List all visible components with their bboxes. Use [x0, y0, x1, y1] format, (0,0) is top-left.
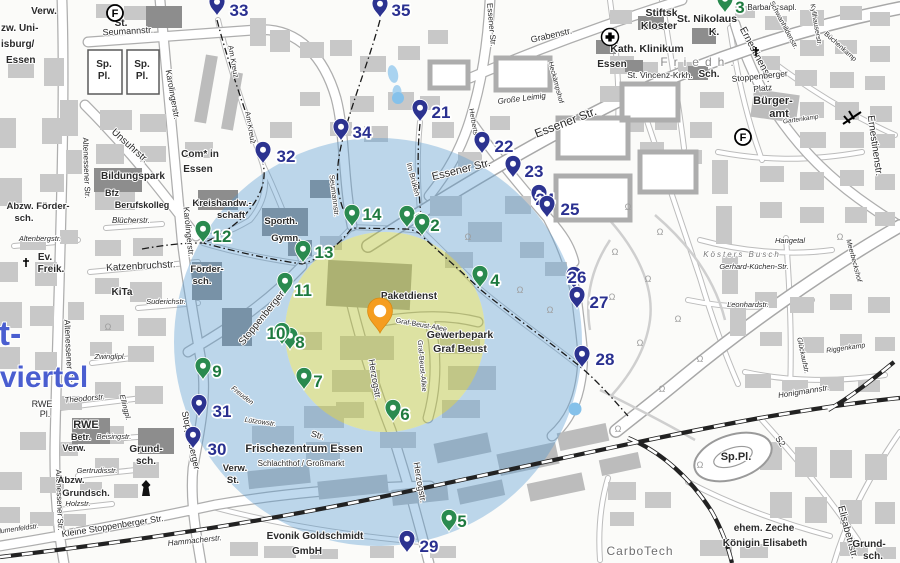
map-label: sch. — [863, 551, 883, 562]
tree-icon: Ω — [547, 305, 554, 315]
tree-icon: Ω — [609, 292, 616, 302]
map-label: Kreishandw.- — [192, 198, 251, 209]
map-label: Bürger- — [753, 95, 793, 107]
map-label: Kloster — [641, 20, 677, 32]
map-label: viertel — [0, 361, 88, 394]
map-label: Friedh. — [660, 55, 739, 69]
marker-25-number[interactable]: 25 — [561, 200, 580, 219]
marker-3-number[interactable]: 3 — [735, 0, 744, 17]
marker-21-number[interactable]: 21 — [432, 103, 451, 122]
map-label: Paketdienst — [381, 291, 438, 302]
map-label: Berufskolleg — [115, 200, 170, 210]
marker-30-number[interactable]: 30 — [208, 440, 227, 459]
hospital-cross-icon — [602, 29, 619, 46]
map-label: CarboTech — [606, 544, 673, 558]
map-label: Förder- — [190, 264, 223, 275]
map-label: sch. — [192, 276, 211, 287]
map-label: Pl. — [40, 409, 51, 419]
map-label: Grund- — [852, 539, 885, 550]
marker-2-number[interactable]: 2 — [430, 216, 439, 235]
tree-icon: Ω — [837, 232, 844, 242]
marker-10-number[interactable]: 10 — [267, 324, 286, 343]
map-label: KiTa — [112, 287, 133, 298]
marker-12-number[interactable]: 12 — [213, 227, 232, 246]
map-label: Verw. — [223, 463, 247, 474]
marker-28-number[interactable]: 28 — [596, 350, 615, 369]
tree-icon: Ω — [105, 322, 112, 332]
map-label: Frischezentrum Essen — [245, 443, 363, 455]
marker-35-number[interactable]: 35 — [392, 1, 411, 20]
map-label: Verw. — [62, 443, 85, 453]
tree-icon: Ω — [615, 424, 622, 434]
marker-14-number[interactable]: 14 — [363, 205, 382, 224]
map-canvas[interactable]: ΩΩΩΩΩΩΩΩΩΩΩΩΩΩΩΩ Verw.St.Sp.Pl.Sp.Pl.Seu… — [0, 0, 900, 563]
map-label: Pl. — [136, 71, 148, 82]
map-label: Stiftsk. — [645, 7, 680, 19]
map-label: K. — [709, 26, 720, 38]
marker-14[interactable]: 14 — [344, 204, 382, 227]
tree-icon: Ω — [465, 232, 472, 242]
map-label: St. — [227, 475, 239, 486]
map-label: t- — [0, 315, 21, 353]
marker-4-number[interactable]: 4 — [490, 271, 500, 290]
marker-9-number[interactable]: 9 — [212, 362, 221, 381]
map-label: Essen — [183, 164, 212, 175]
highlight-dot — [392, 92, 404, 104]
marker-13[interactable]: 13 — [295, 240, 333, 263]
map-label: Schlachthof / Großmarkt — [258, 459, 345, 468]
map-label: Gertrudisstr. — [77, 466, 118, 475]
map-label: Graf Beust — [433, 343, 487, 355]
map-label: Bfz — [105, 188, 119, 198]
marker-26-number[interactable]: 26 — [568, 268, 587, 287]
map-label: isburg/ — [1, 39, 35, 50]
map-label: Sporth. — [264, 216, 297, 227]
map-label: Sch. — [698, 69, 719, 80]
tree-icon: Ω — [657, 227, 664, 237]
svg-text:F: F — [112, 8, 119, 20]
map-label: schaft — [217, 210, 246, 221]
marker-26[interactable]: 26 — [566, 266, 586, 289]
marker-23-number[interactable]: 23 — [525, 162, 544, 181]
marker-32-number[interactable]: 32 — [277, 147, 296, 166]
marker-31-number[interactable]: 31 — [213, 402, 232, 421]
tree-icon: Ω — [675, 314, 682, 324]
marker-33-number[interactable]: 33 — [230, 1, 249, 20]
map-label: Ev. — [38, 252, 52, 263]
marker-34-number[interactable]: 34 — [353, 123, 372, 142]
marker-6-number[interactable]: 6 — [400, 405, 409, 424]
map-label: Gewerbepark — [427, 329, 494, 341]
map-label: Evonik Goldschmidt — [267, 531, 364, 542]
map-label: Freik. — [38, 264, 65, 275]
marker-11-number[interactable]: 11 — [294, 281, 312, 300]
marker-21[interactable]: 21 — [412, 99, 450, 122]
map-label: Suderichstr. — [146, 297, 186, 306]
map-label: Grundsch. — [62, 488, 110, 499]
map-label: Abzw. — [57, 475, 84, 486]
map-label: Kösters Busch — [703, 250, 781, 259]
map-label: St. Nikolaus — [677, 13, 737, 25]
map-label: Platz — [753, 82, 773, 94]
map-label: RWE — [32, 399, 53, 409]
map-label: GmbH — [292, 546, 322, 557]
svg-text:F: F — [740, 132, 747, 144]
tree-icon: Ω — [625, 202, 632, 212]
tree-icon: Ω — [645, 274, 652, 284]
map-label: RWE — [73, 419, 98, 431]
highlight-dot — [569, 403, 582, 416]
map-label: St. Vincenz-Krkh. — [627, 70, 693, 80]
marker-13-number[interactable]: 13 — [315, 243, 334, 262]
map-label: sch. — [14, 213, 33, 224]
circled-f-icon: F — [107, 5, 123, 21]
map-label: ehem. Zeche — [734, 523, 795, 534]
map-label: zw. Uni- — [1, 23, 38, 34]
map-label: Holzstr. — [65, 499, 90, 508]
map-label: Verw. — [31, 6, 57, 17]
map-label: Pl. — [98, 71, 110, 82]
tree-icon: Ω — [517, 285, 524, 295]
tree-icon: Ω — [612, 247, 619, 257]
map-label: Kath. Klinikum — [610, 43, 684, 55]
map-label: Sp. — [96, 59, 112, 70]
marker-22-number[interactable]: 22 — [495, 137, 514, 156]
map-label: Gymn. — [271, 233, 301, 244]
marker-8-number[interactable]: 8 — [295, 333, 304, 352]
map-label: Sp. — [134, 59, 150, 70]
map-label: Gerhard-Küchen-Str. — [719, 262, 788, 271]
circled-f-icon: F — [735, 129, 751, 145]
map-label: Grund- — [129, 444, 162, 455]
map-label: Essen — [597, 59, 626, 70]
map-label: Blücherstr. — [112, 216, 150, 225]
map-label: Altenbergstr. — [18, 234, 61, 243]
marker-29-number[interactable]: 29 — [420, 537, 439, 556]
map-label: Com* in — [181, 149, 219, 160]
marker-27-number[interactable]: 27 — [590, 293, 609, 312]
map-label: Bildungspark — [101, 171, 165, 182]
map-label: Beisingstr. — [97, 432, 132, 441]
map-label: Sp.Pl. — [721, 451, 752, 463]
marker-5-number[interactable]: 5 — [457, 512, 466, 531]
map-label: Essen — [6, 55, 35, 66]
tree-icon: Ω — [659, 384, 666, 394]
tree-icon: Ω — [697, 354, 704, 364]
map-label: Betr. — [71, 432, 91, 442]
map-label: Abzw. Förder- — [7, 201, 70, 212]
city-map: ΩΩΩΩΩΩΩΩΩΩΩΩΩΩΩΩ Verw.St.Sp.Pl.Sp.Pl.Seu… — [0, 0, 900, 563]
map-label: Hangetal — [775, 236, 805, 245]
map-label: Zwinglipl. — [93, 352, 125, 361]
tree-icon: Ω — [697, 460, 704, 470]
marker-7-number[interactable]: 7 — [313, 372, 322, 391]
map-label: sch. — [136, 456, 156, 467]
tree-icon: Ω — [637, 338, 644, 348]
map-label: Königin Elisabeth — [723, 538, 807, 549]
map-label: Leonhardstr. — [727, 300, 769, 309]
